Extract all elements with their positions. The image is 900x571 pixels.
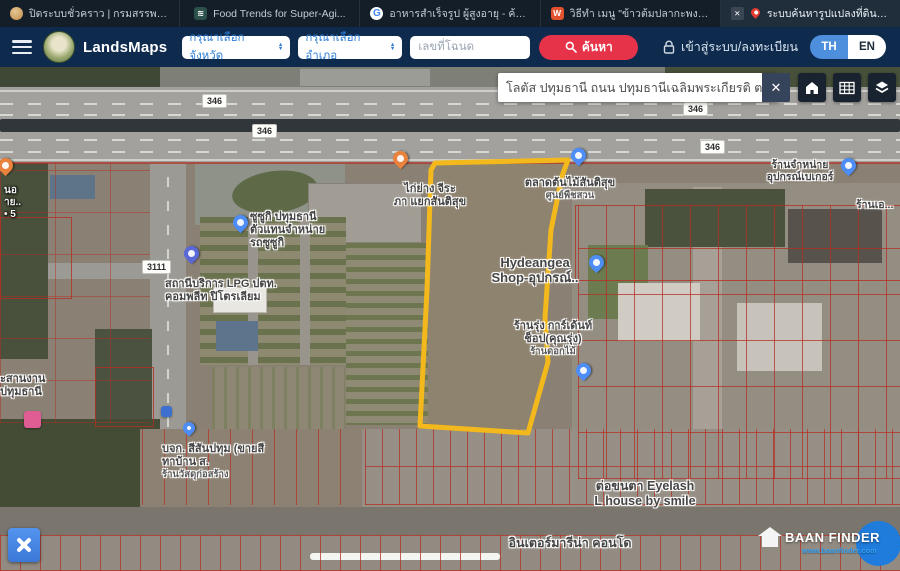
- deed-number-input[interactable]: [410, 36, 530, 59]
- poi-label-paint-shop: บจก. สีสันปทุม (ขายสี ทาบ้าน ส. ร้านวัสด…: [162, 443, 264, 480]
- map-pin-favicon: [750, 7, 761, 21]
- app-header: LandsMaps กรุณาเลือกจังหวัด ▲▼ กรุณาเลือ…: [0, 27, 900, 67]
- app-title: LandsMaps: [83, 39, 167, 56]
- road-badge-3111: 3111: [142, 260, 171, 274]
- district-select-label: กรุณาเลือกอำเภอ: [305, 29, 384, 65]
- tab-title: วิธีทำ เมนู "ข้าวต้มปลากะพง" เ...: [570, 5, 710, 22]
- search-button-label: ค้นหา: [582, 38, 613, 57]
- province-select[interactable]: กรุณาเลือกจังหวัด ▲▼: [182, 36, 290, 59]
- magnifier-icon: [565, 41, 577, 53]
- lock-icon: [663, 40, 675, 54]
- tab-recipe[interactable]: W วิธีทำ เมนู "ข้าวต้มปลากะพง" เ...: [541, 0, 721, 27]
- road-badge-346: 346: [683, 102, 708, 116]
- wongnai-favicon: W: [551, 7, 564, 20]
- baanfinder-url: www.baanfinder.com: [802, 546, 877, 555]
- baanfinder-watermark: BAAN FINDER www.baanfinder.com: [752, 517, 900, 569]
- tab-landsmaps-active[interactable]: ✕ ระบบค้นหารูปแปลงที่ดิน (Land...: [721, 0, 900, 27]
- tab-title: ปิดระบบชั่วคราว | กรมสรรพากร...: [29, 5, 169, 22]
- search-button[interactable]: ค้นหา: [539, 35, 638, 60]
- updown-arrows-icon: ▲▼: [390, 43, 395, 52]
- poi-label-shop-edge: ร้านเอ...: [856, 199, 893, 211]
- poi-label-lpg: สถานีบริการ LPG ปตท.คอมพลีท ปิโตรเลียม: [165, 278, 277, 304]
- home-button[interactable]: [798, 73, 826, 102]
- poi-label-hydrangea: HydeangeaShop-อุปกรณ์..: [470, 255, 600, 286]
- poi-label-condo: อินเตอร์มารีน่า คอนโด: [490, 536, 650, 551]
- grid-icon: [839, 81, 855, 95]
- updown-arrows-icon: ▲▼: [278, 43, 283, 52]
- login-label: เข้าสู่ระบบ/ลงทะเบียน: [681, 37, 798, 57]
- poi-label-eyelash: ต่อขนตา EyelashL house by smile: [575, 479, 715, 509]
- department-of-lands-logo: [43, 31, 75, 63]
- google-favicon: G: [370, 7, 383, 20]
- road-badge-346: 346: [252, 124, 277, 138]
- tab-google-search[interactable]: G อาหารสำเร็จรูป ผู้สูงอายุ - ค้นห...: [360, 0, 540, 27]
- satellite-map-canvas[interactable]: 346 346 346 346 3111 ไก่ย่าง จีระภา แยกส…: [0, 67, 900, 571]
- landsmaps-window: ปิดระบบชั่วคราว | กรมสรรพากร... ≋ Food T…: [0, 0, 900, 571]
- browser-tab-bar: ปิดระบบชั่วคราว | กรมสรรพากร... ≋ Food T…: [0, 0, 900, 27]
- poi-label-edge-partial: นอ าย.. • 5: [4, 185, 21, 220]
- clear-search-button[interactable]: ✕: [762, 73, 790, 102]
- grid-view-button[interactable]: [833, 73, 861, 102]
- language-toggle: TH EN: [810, 35, 886, 59]
- poi-label-bakery: ร้านจำหน่ายอุปกรณ์เบเกอร์: [755, 159, 845, 184]
- home-icon: [804, 80, 820, 95]
- tab-title: ระบบค้นหารูปแปลงที่ดิน (Land...: [767, 5, 890, 22]
- lang-en-button[interactable]: EN: [848, 35, 886, 59]
- tab-revenue-dept[interactable]: ปิดระบบชั่วคราว | กรมสรรพากร...: [0, 0, 180, 27]
- tab-title: Food Trends for Super-Agi...: [213, 8, 345, 20]
- poi-label-coordination-office: ะสานงานปทุมธานี: [0, 373, 45, 399]
- revenue-dept-favicon: [10, 7, 23, 20]
- lang-th-button[interactable]: TH: [810, 35, 848, 59]
- layers-button[interactable]: [868, 73, 896, 102]
- province-select-label: กรุณาเลือกจังหวัด: [189, 29, 272, 65]
- transit-stop-icon: [161, 406, 172, 417]
- tab-title: อาหารสำเร็จรูป ผู้สูงอายุ - ค้นห...: [389, 5, 529, 22]
- poi-label-grill: ไก่ย่าง จีระภา แยกสันติสุข: [370, 183, 490, 209]
- layers-icon: [874, 80, 890, 95]
- draw-measure-button[interactable]: [8, 528, 40, 562]
- government-office-icon: [24, 411, 41, 428]
- road-badge-346: 346: [700, 140, 725, 154]
- map-search-input[interactable]: [498, 73, 778, 102]
- extension-box-icon: ✕: [731, 7, 744, 20]
- baanfinder-brand: BAAN FINDER: [785, 530, 880, 545]
- road-badge-346: 346: [202, 94, 227, 108]
- food-site-favicon: ≋: [194, 7, 207, 20]
- login-link[interactable]: เข้าสู่ระบบ/ลงทะเบียน: [663, 37, 798, 57]
- poi-label-tree-market: ตลาดต้นไม้สันติสุข ศูนย์พืชสวน: [495, 177, 645, 201]
- baanfinder-house-icon: [758, 527, 782, 549]
- district-select[interactable]: กรุณาเลือกอำเภอ ▲▼: [298, 36, 402, 59]
- tab-food-trends[interactable]: ≋ Food Trends for Super-Agi...: [180, 0, 360, 27]
- parcel-overlay: [0, 67, 900, 571]
- poi-label-garden-shop: ร้านรุ่ง การ์เด้นท์ ช็อป(คุณรุ่ง) ร้านดอ…: [488, 320, 618, 357]
- poi-label-suzuki: ซูซูกิ ปทุมธานี ตัวแทนจำหน่าย รถซูซูกิ: [250, 211, 325, 250]
- menu-hamburger-icon[interactable]: [12, 40, 32, 54]
